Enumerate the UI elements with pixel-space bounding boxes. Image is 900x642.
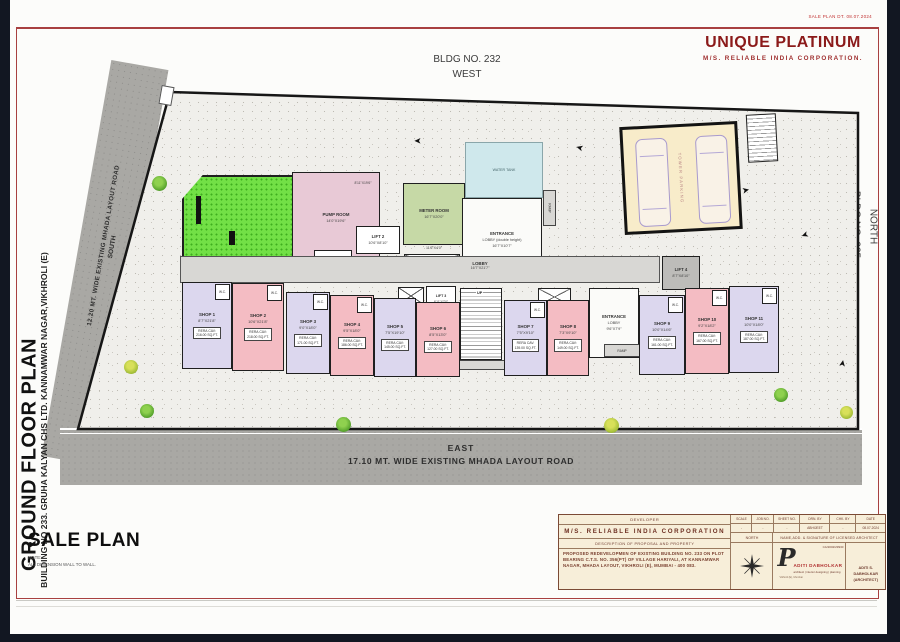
shop-2: W.C. SHOP 2 10'6"X21'8" RERA CAV:218.00 … [232, 283, 284, 371]
central-staircase [460, 288, 502, 360]
west-label: WEST [377, 67, 557, 82]
shop-4: W.C. SHOP 4 9'5"X18'0" RERA CAV:186.00 S… [330, 295, 374, 376]
tree-icon [152, 176, 167, 191]
wc-room: W.C. [668, 297, 683, 313]
description-label: DESCRIPTION OF PROPOSAL AND PROPERTY [559, 539, 730, 549]
lift-2: LIFT 2 10'6"X8'10" [356, 226, 400, 254]
lobby-corridor [180, 256, 660, 283]
shop-5: SHOP 5 7'5"X19'10" RERA CAV:145.00 SQ.FT… [374, 298, 416, 377]
shop-9: W.C. SHOP 9 10'0"X14'6" RERA CAV:161.00 … [639, 295, 685, 375]
shop-6: SHOP 6 8'5"X13'0" RERA CAV:127.00 SQ.FT. [416, 302, 460, 377]
title-block-headers: SCALE JOB NO. SHEET NO. DRN. BY CHK. BY … [731, 515, 885, 524]
meter-below-dim: 11'6"X4'0" [406, 246, 462, 254]
shop-8: SHOP 8 7'3"X9'10" RERA CAV:149.00 SQ.FT. [547, 300, 589, 376]
proposal-description: PROPOSED REDEVELOPMEN OF EXISTING BUILDI… [559, 549, 730, 589]
bldg-232-label: BLDG NO. 232 [377, 52, 557, 67]
meter-room: METER ROOM 16'7"X20'0" [403, 183, 465, 245]
rera-area: RERA CAV:218.00 SQ.FT. [244, 328, 272, 341]
north-arrow-icon: ➤ [741, 185, 750, 195]
car-icon [635, 138, 672, 228]
east-label: EAST [60, 443, 862, 453]
shop-3: W.C. SHOP 3 9'0"X18'0" RERA CAV:171.00 S… [286, 292, 330, 374]
architect-row-label: NAME,ADD. & SIGNATURE OF LICENSED ARCHIT… [773, 533, 885, 542]
screenshot-root: { "colors":{"frame":"#121722","sheet":"#… [0, 0, 900, 642]
wall-segment [196, 196, 201, 224]
tree-icon [604, 418, 619, 433]
title-block-right: SCALE JOB NO. SHEET NO. DRN. BY CHK. BY … [731, 515, 885, 589]
title-block: DEVELOPER M/S. RELIABLE INDIA CORPORATIO… [558, 514, 886, 590]
signature-cell: CA/2002/29930 P ADITI DABHOLKAR architec… [773, 543, 846, 589]
wc-room: W.C. [712, 290, 727, 306]
sale-plan-title: SALE PLAN [28, 530, 140, 552]
drawing-sheet: SALE PLAN DT. 08.07.2024 UNIQUE PLATINUM… [10, 0, 887, 634]
project-brand: UNIQUE PLATINUM M/S. RELIABLE INDIA CORP… [690, 34, 876, 62]
north-arrow-icon: ➤ [838, 359, 848, 368]
rera-area: RERA CAV:149.00 SQ.FT. [554, 339, 582, 352]
tree-icon [140, 404, 154, 418]
architect-signblock: ADITI S. DABHOLKAR (ARCHITECT) [846, 543, 885, 589]
stair-up-label: UP [476, 291, 483, 295]
architect-name: ADITI DABHOLKAR [793, 563, 842, 568]
water-tank: WATER TANK [465, 142, 543, 198]
tree-icon [336, 417, 351, 432]
rera-area: RERA CAV:167.00 SQ.FT. [693, 332, 721, 345]
rera-area: RERA CAV:187.00 SQ.FT. [740, 331, 768, 344]
sheet-divider [16, 606, 877, 607]
shop-11: W.C. SHOP 11 10'0"X18'0" RERA CAV:187.00… [729, 286, 779, 373]
east-road-label: 17.10 MT. WIDE EXISTING MHADA LAYOUT ROA… [60, 456, 862, 466]
tower-parking: TOWER PARKING [619, 121, 742, 235]
adjacent-building-top: BLDG NO. 232 WEST [377, 52, 557, 82]
architect-address: Vikhroli (E), Mumbai [779, 576, 843, 580]
compass-rose-icon [739, 553, 765, 579]
rera-area: RERA CAV:161.00 SQ.FT. [648, 336, 676, 349]
shop-1: W.C. SHOP 1 8'7"X21'8" RERA CAV:216.00 S… [182, 282, 232, 369]
ramp-bottom: RAMP [604, 344, 640, 357]
wc-room: W.C. [762, 288, 777, 304]
north-side-label: NORTH [868, 192, 879, 262]
title-block-left: DEVELOPER M/S. RELIABLE INDIA CORPORATIO… [559, 515, 731, 589]
top-right-staircase [746, 113, 778, 163]
architect-reg-no: CA/2002/29930 [823, 545, 844, 549]
shop-7: W.C. SHOP 7 7'5"X9'10" RERA CAV:139.00 S… [504, 300, 547, 376]
developer-name: M/S. RELIABLE INDIA CORPORATION [559, 525, 730, 539]
tree-icon [124, 360, 138, 374]
lift-4: LIFT 4 8'7"X8'10" [662, 256, 700, 290]
tower-parking-label: TOWER PARKING [677, 152, 685, 203]
tree-icon [840, 406, 853, 419]
wall-segment [229, 231, 235, 245]
rera-area: RERA CAV:216.00 SQ.FT. [193, 327, 221, 340]
title-block-values: - - - ABHIJEET - 08.07.2024 [731, 524, 885, 533]
wc-room: W.C. [267, 285, 282, 301]
shop-10: W.C. SHOP 10 9'2"X18'2" RERA CAV:167.00 … [685, 288, 729, 374]
compass-cell [731, 543, 773, 589]
lobby-label: LOBBY 16'7"X21'7" [450, 261, 510, 279]
tree-icon [774, 388, 788, 402]
wc-room: W.C. [357, 297, 372, 313]
sheet-divider [16, 600, 877, 601]
project-title: UNIQUE PLATINUM [690, 34, 876, 52]
ramp-top: RAMP [543, 190, 556, 226]
developer-subtitle: M/S. RELIABLE INDIA CORPORATION. [690, 55, 876, 62]
road-edge-line [60, 433, 862, 434]
sale-plan-caption: SALE PLAN NOTE: ALL DIMENSION WALL TO WA… [28, 530, 140, 568]
developer-label: DEVELOPER [559, 515, 730, 525]
title-block-row4: CA/2002/29930 P ADITI DABHOLKAR architec… [731, 543, 885, 589]
sale-plan-note: NOTE: ALL DIMENSION WALL TO WALL. [28, 555, 140, 568]
rera-area: RERA CAV:186.00 SQ.FT. [338, 337, 366, 350]
pump-extra-dim: 8'11"X19'6" [346, 181, 380, 189]
wc-room: W.C. [313, 294, 328, 310]
rera-area: RERA CAV:127.00 SQ.FT. [424, 341, 452, 354]
wc-room: W.C. [530, 302, 545, 318]
wc-room: W.C. [215, 284, 230, 300]
title-block-row3: NORTH NAME,ADD. & SIGNATURE OF LICENSED … [731, 533, 885, 543]
north-arrow-icon: ➤ [414, 136, 422, 145]
north-cell-label: NORTH [731, 533, 773, 542]
rera-area: RERA CAV:171.00 SQ.FT. [294, 334, 322, 347]
car-icon [695, 135, 732, 225]
plan-date-stamp: SALE PLAN DT. 08.07.2024 [700, 14, 872, 19]
east-road: EAST 17.10 MT. WIDE EXISTING MHADA LAYOU… [60, 428, 862, 485]
rera-area: RERA CAV:145.00 SQ.FT. [381, 339, 409, 352]
stair-landing [456, 360, 506, 370]
architect-tagline: architect | interior designing | plannin… [793, 570, 840, 574]
rera-area: RERA CAV:139.00 SQ.FT. [512, 339, 540, 352]
